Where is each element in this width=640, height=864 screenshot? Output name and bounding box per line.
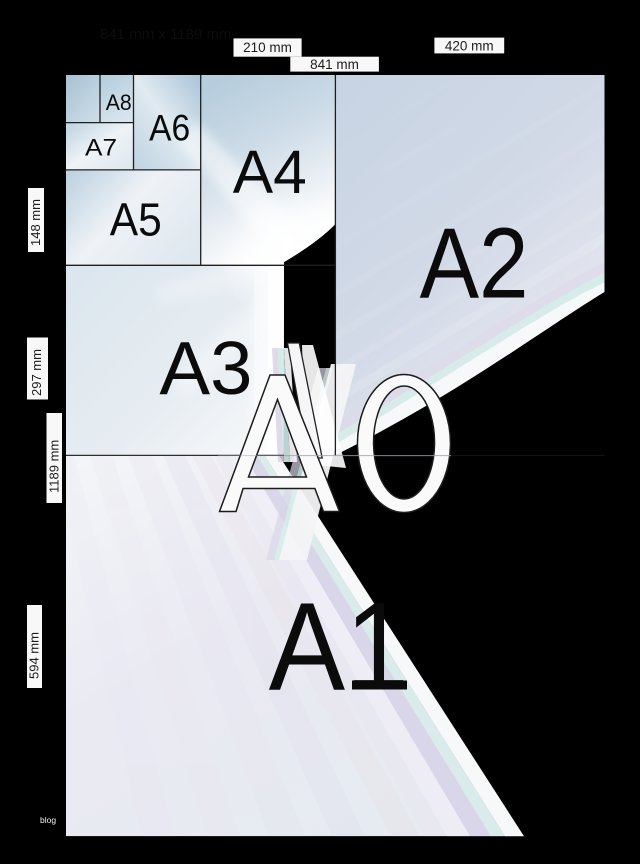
svg-text:1189 mm: 1189 mm: [47, 440, 62, 493]
svg-text:148 mm: 148 mm: [28, 199, 43, 246]
svg-text:A2: A2: [420, 208, 529, 320]
svg-text:841 mm: 841 mm: [310, 57, 359, 72]
svg-text:blog: blog: [40, 815, 56, 825]
svg-text:420 mm: 420 mm: [445, 38, 494, 53]
svg-text:A4: A4: [233, 138, 307, 206]
svg-text:A7: A7: [85, 135, 117, 162]
svg-text:841 mm x 1189 mm: 841 mm x 1189 mm: [100, 26, 231, 43]
svg-text:210 mm: 210 mm: [243, 40, 292, 55]
svg-text:A1: A1: [269, 577, 409, 716]
svg-text:297 mm: 297 mm: [29, 349, 44, 396]
svg-text:594 mm: 594 mm: [27, 632, 42, 679]
svg-text:A3: A3: [159, 326, 252, 410]
svg-text:A6: A6: [149, 106, 190, 148]
svg-text:A8: A8: [106, 90, 132, 115]
svg-text:A5: A5: [110, 194, 162, 246]
